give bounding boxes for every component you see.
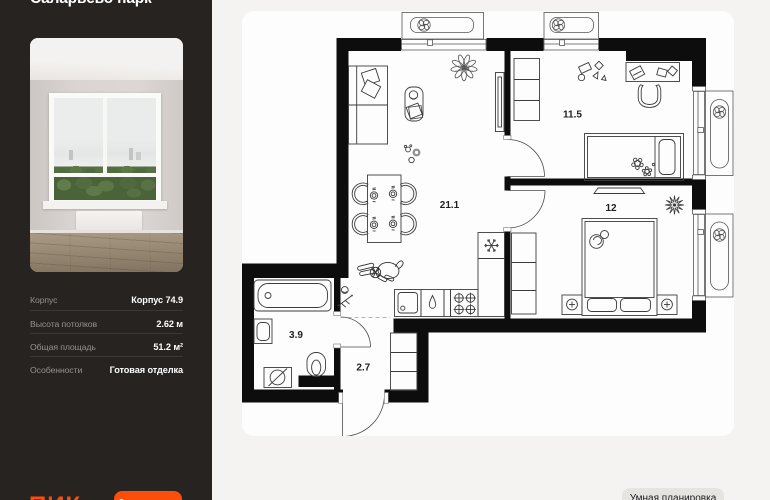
svg-text:11.5: 11.5 — [563, 110, 582, 121]
svg-text:3.9: 3.9 — [289, 330, 303, 341]
svg-text:2.7: 2.7 — [356, 363, 370, 374]
svg-text:21.1: 21.1 — [440, 200, 460, 211]
svg-text:12: 12 — [605, 203, 617, 214]
